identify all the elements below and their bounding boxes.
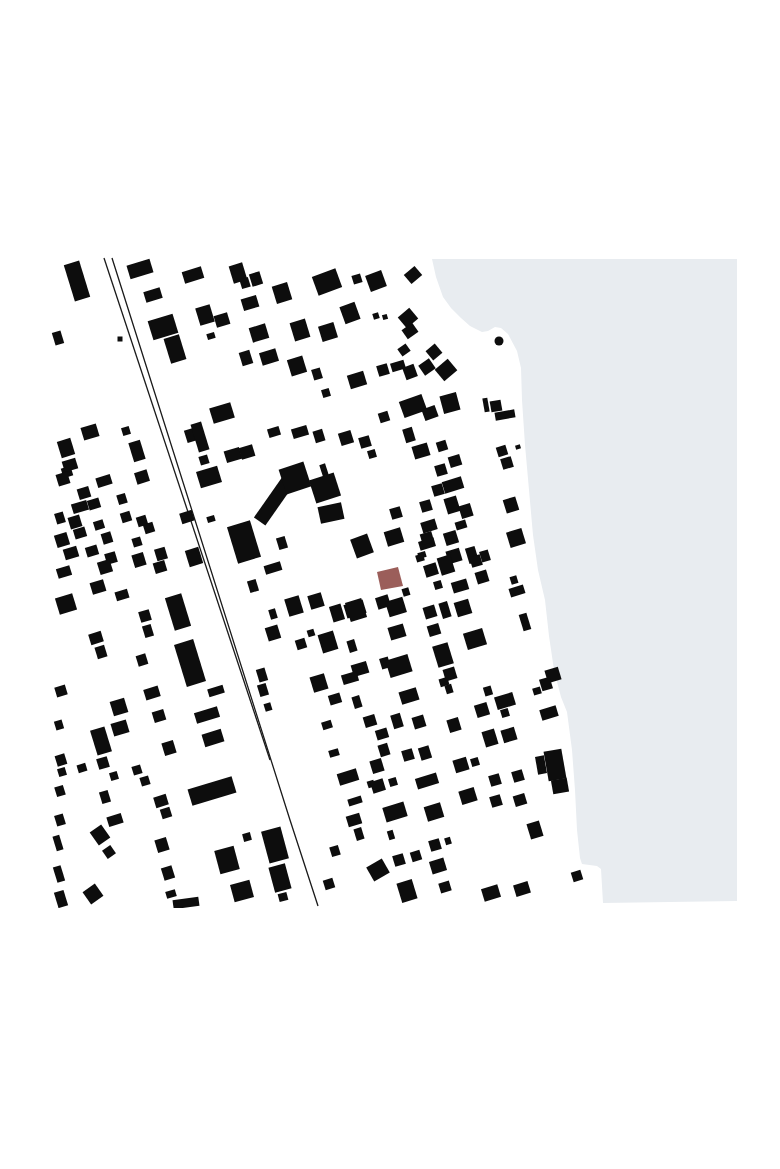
figure-ground-map bbox=[0, 0, 780, 1169]
building-footprint bbox=[118, 337, 123, 342]
coast-dot-building bbox=[495, 337, 504, 346]
building-footprint bbox=[551, 778, 569, 795]
map-layer bbox=[50, 256, 742, 909]
building-footprint bbox=[490, 400, 503, 413]
page-canvas bbox=[0, 0, 780, 1169]
site-plan-svg bbox=[0, 0, 780, 1169]
